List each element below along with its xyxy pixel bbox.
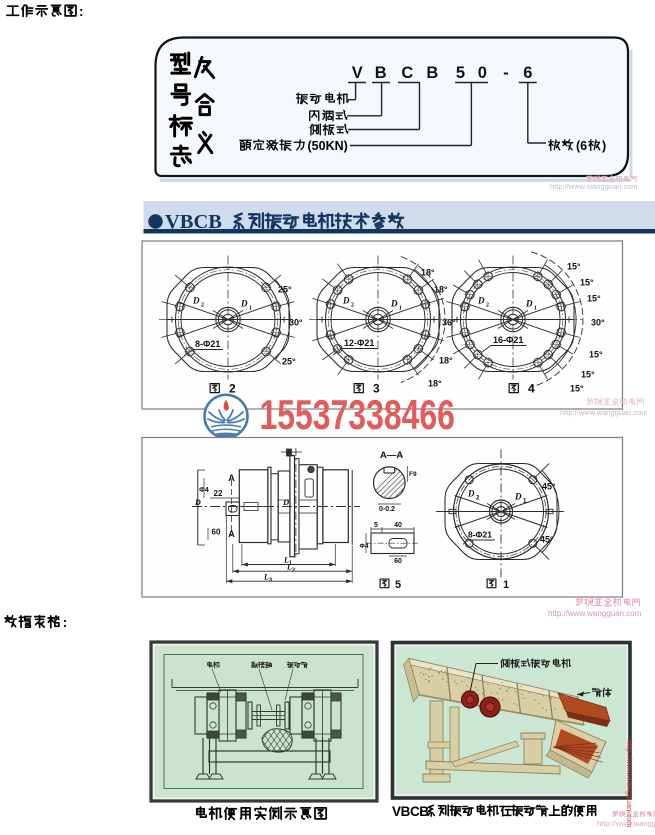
svg-text:18°: 18° — [421, 268, 435, 278]
svg-text:22: 22 — [214, 489, 223, 498]
svg-text:15°: 15° — [587, 294, 601, 304]
svg-text:(6: (6 — [576, 139, 587, 153]
svg-text:-: - — [503, 64, 509, 82]
svg-text:15°: 15° — [567, 262, 581, 272]
svg-text:8-Φ21: 8-Φ21 — [468, 530, 492, 540]
svg-text:2: 2 — [292, 567, 295, 573]
svg-text:http://www.wangguan.com: http://www.wangguan.com — [548, 609, 642, 618]
svg-text:18°: 18° — [434, 285, 448, 295]
svg-text:15°: 15° — [580, 278, 594, 288]
svg-text:16-Φ21: 16-Φ21 — [493, 335, 523, 345]
svg-text::: : — [63, 615, 68, 630]
svg-text:6: 6 — [523, 64, 532, 82]
svg-text:D: D — [192, 296, 200, 306]
svg-text:): ) — [602, 139, 606, 153]
svg-text:12-Φ21: 12-Φ21 — [344, 338, 374, 348]
svg-text:30°: 30° — [289, 318, 303, 328]
svg-text:D: D — [525, 299, 533, 309]
svg-text:D: D — [390, 299, 398, 309]
svg-text:15537338466: 15537338466 — [260, 391, 455, 438]
svg-text:D: D — [514, 492, 522, 502]
svg-text:2: 2 — [201, 303, 204, 309]
svg-text:A: A — [228, 473, 235, 483]
svg-text:V: V — [352, 64, 363, 82]
svg-text:http://www.wangguan.com: http://www.wangguan.com — [560, 408, 648, 417]
svg-text:40: 40 — [394, 522, 402, 529]
svg-text:4: 4 — [528, 382, 535, 396]
svg-text:18°: 18° — [428, 379, 442, 389]
svg-text:1: 1 — [534, 306, 537, 312]
svg-text:30°: 30° — [591, 318, 605, 328]
svg-text:0: 0 — [478, 64, 487, 82]
svg-text:D: D — [342, 296, 350, 306]
svg-text:60: 60 — [212, 528, 221, 537]
svg-text:D: D — [477, 296, 485, 306]
svg-text:C: C — [401, 64, 413, 82]
svg-text:http://www.wangguan.com: http://www.wangguan.com — [550, 182, 638, 191]
svg-text:5: 5 — [374, 522, 378, 529]
svg-text:2: 2 — [229, 382, 236, 396]
svg-text:1: 1 — [399, 306, 402, 312]
svg-text:1: 1 — [249, 306, 252, 312]
svg-text:3: 3 — [269, 577, 272, 583]
svg-text:0-0.2: 0-0.2 — [379, 506, 395, 513]
svg-text:15°: 15° — [570, 384, 584, 394]
svg-text:A—A: A—A — [380, 450, 403, 461]
svg-text:http://www.wangguan.com: http://www.wangguan.com — [597, 819, 655, 828]
svg-text:1: 1 — [503, 579, 509, 591]
svg-text:VBCB: VBCB — [165, 211, 222, 233]
svg-text:F9: F9 — [409, 471, 417, 478]
svg-text:15°: 15° — [589, 350, 603, 360]
svg-text:D: D — [282, 497, 289, 507]
svg-text:(50KN): (50KN) — [308, 139, 348, 153]
svg-text:5: 5 — [395, 579, 401, 591]
svg-text:15°: 15° — [581, 370, 595, 380]
svg-text:25°: 25° — [278, 285, 292, 295]
svg-text:45°: 45° — [540, 535, 554, 545]
svg-text:5: 5 — [456, 64, 465, 82]
svg-text:D: D — [194, 498, 201, 507]
svg-text:D: D — [240, 299, 248, 309]
svg-text::: : — [79, 4, 84, 19]
svg-text:VBCB: VBCB — [392, 804, 429, 819]
svg-text:B: B — [426, 64, 438, 82]
svg-text:Φ4: Φ4 — [360, 543, 369, 550]
svg-text:D: D — [467, 489, 475, 499]
svg-text:A: A — [228, 529, 235, 539]
svg-text:18°: 18° — [439, 356, 453, 366]
svg-text:25°: 25° — [282, 357, 296, 367]
svg-text:45°: 45° — [542, 482, 556, 492]
svg-text:2: 2 — [351, 303, 354, 309]
svg-text:8-Φ21: 8-Φ21 — [195, 339, 220, 349]
svg-text:60: 60 — [394, 558, 402, 565]
svg-text:36°: 36° — [442, 318, 456, 328]
svg-text:2: 2 — [486, 303, 489, 309]
svg-text:B: B — [375, 64, 387, 82]
